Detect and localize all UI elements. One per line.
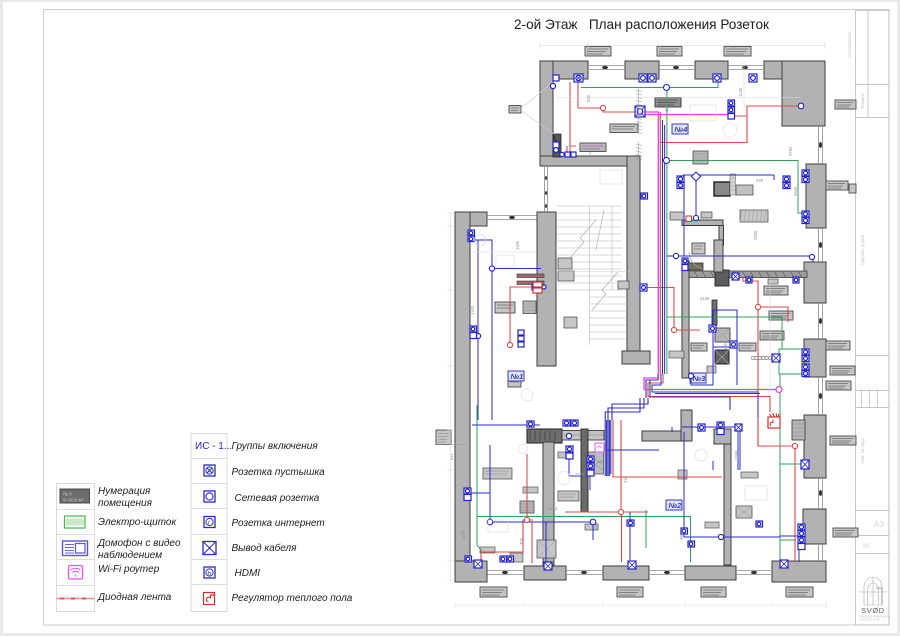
svg-text:1245: 1245 — [548, 506, 558, 511]
svg-text:Розетка интернет: Розетка интернет — [232, 518, 325, 529]
svg-text:215: 215 — [623, 475, 628, 483]
svg-text:1120: 1120 — [664, 102, 669, 112]
svg-text:706: 706 — [519, 537, 524, 545]
svg-text:А3: А3 — [874, 520, 884, 529]
svg-text:Регулятор теплого пола: Регулятор теплого пола — [232, 593, 353, 604]
svg-text:545: 545 — [586, 94, 591, 102]
svg-text:756: 756 — [594, 522, 599, 530]
svg-text:1135: 1135 — [723, 342, 728, 352]
svg-text:3640: 3640 — [793, 186, 798, 196]
svg-text:№4: №4 — [675, 125, 689, 134]
svg-text:Электро-щиток: Электро-щиток — [98, 517, 177, 528]
svg-text:помещения: помещения — [98, 498, 153, 509]
svg-text:наблюдением: наблюдением — [98, 549, 162, 561]
svg-text:М: М — [863, 543, 869, 550]
svg-text:2135: 2135 — [700, 296, 710, 301]
svg-text:2-ой Этаж План расположения: 2-ой Этаж План расположения Розеток — [514, 17, 770, 32]
svg-text:ИС - 1...: ИС - 1... — [195, 441, 232, 452]
svg-text:2960: 2960 — [753, 230, 758, 240]
svg-text:3990: 3990 — [679, 530, 684, 540]
svg-text:S=00.0 м²: S=00.0 м² — [63, 498, 84, 503]
svg-text:+7 900 000 00 00: +7 900 000 00 00 — [859, 618, 880, 622]
svg-text:h: h — [208, 571, 212, 578]
svg-text:№3: №3 — [693, 374, 707, 383]
svg-text:1135: 1135 — [738, 87, 743, 97]
svg-text:HDMI: HDMI — [235, 568, 261, 579]
svg-text:Wi-Fi роутер: Wi-Fi роутер — [98, 564, 160, 575]
svg-text:511: 511 — [449, 453, 454, 460]
svg-text:Группы включения: Группы включения — [232, 441, 319, 452]
svg-text:1140: 1140 — [470, 305, 475, 315]
svg-text:1596: 1596 — [734, 450, 739, 460]
svg-text:SVØD: SVØD — [861, 606, 885, 615]
svg-text:Согласовано: Согласовано — [847, 31, 852, 57]
svg-text:Вывод кабеля: Вывод кабеля — [232, 542, 298, 554]
svg-text:1148: 1148 — [461, 530, 466, 540]
svg-text:№ 0: № 0 — [63, 492, 72, 497]
svg-text:№2: №2 — [669, 501, 683, 510]
svg-text:445: 445 — [756, 178, 764, 183]
svg-text:Нумерация: Нумерация — [98, 486, 151, 497]
svg-text:Сетевая розетка: Сетевая розетка — [235, 493, 320, 504]
svg-text:1196: 1196 — [515, 240, 520, 250]
svg-text:Инв. № подл.: Инв. № подл. — [860, 437, 865, 464]
svg-text:2760: 2760 — [788, 146, 793, 156]
svg-text:№1: №1 — [511, 372, 524, 381]
svg-text:Формат: Формат — [860, 93, 865, 108]
svg-text:Домофон с видео: Домофон с видео — [97, 537, 181, 549]
svg-text:Диодная лента: Диодная лента — [97, 592, 172, 603]
svg-text:2135: 2135 — [575, 472, 585, 477]
svg-text:Подпись и дата: Подпись и дата — [860, 234, 865, 266]
svg-text:Розетка пустышка: Розетка пустышка — [232, 467, 326, 478]
